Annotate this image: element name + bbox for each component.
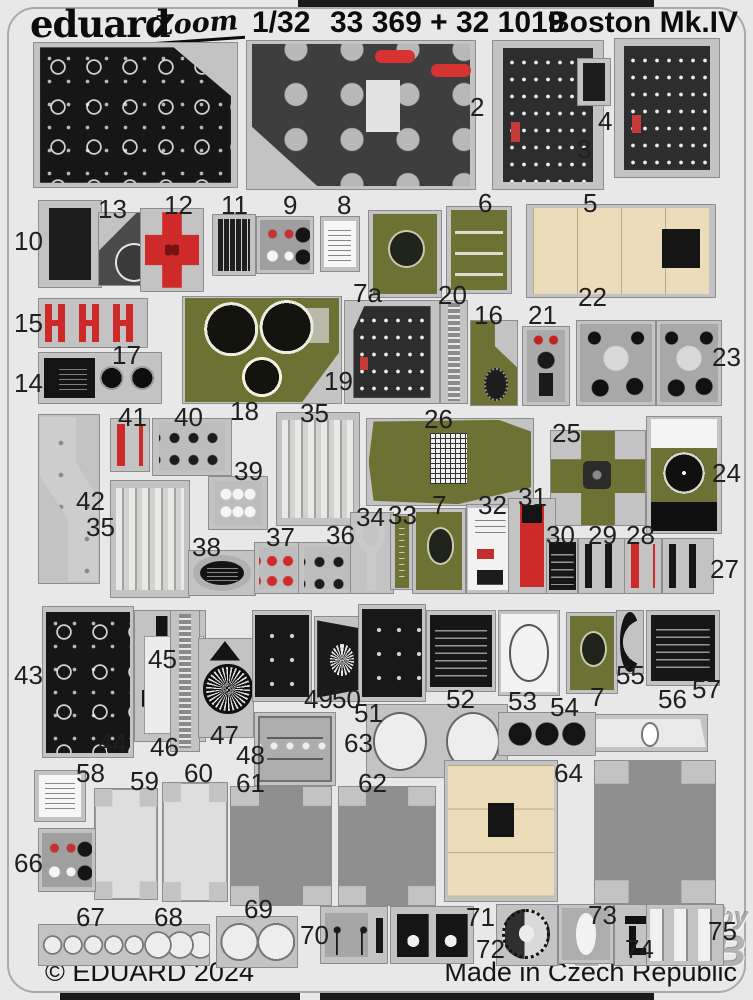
part-number-label-34: 34 — [356, 502, 385, 533]
part-number-label-31: 31 — [518, 482, 547, 513]
part-number-label-15: 15 — [14, 308, 43, 339]
part-number-label-72: 72 — [476, 934, 505, 965]
pe-sheet: eduard Zoom 1/32 33 369 + 32 1019 Boston… — [0, 0, 753, 1000]
part-35 — [110, 480, 190, 598]
part-number-label-73: 73 — [588, 900, 617, 931]
part-number-label-8: 8 — [337, 190, 351, 221]
part-number-label-11: 11 — [221, 190, 248, 221]
part-number-label-28: 28 — [626, 520, 655, 551]
part-22 — [576, 320, 656, 406]
part-number-label-9: 9 — [283, 190, 297, 221]
part-number-label-16: 16 — [474, 300, 503, 331]
part-number-label-57: 57 — [692, 674, 721, 705]
part-60 — [162, 782, 228, 902]
part-number-label-58: 58 — [76, 758, 105, 789]
part-number-label-26: 26 — [424, 404, 453, 435]
part-48 — [254, 712, 336, 786]
part-number-label-43: 43 — [14, 660, 43, 691]
part-number-label-52: 52 — [446, 684, 475, 715]
part-number-label-71: 71 — [466, 902, 495, 933]
part-14 — [38, 352, 162, 404]
part-62 — [338, 786, 436, 906]
part-number-label-37: 37 — [266, 522, 295, 553]
part-number-label-49: 49 — [304, 684, 333, 715]
part-number-label-45: 45 — [148, 644, 177, 675]
part-number-label-19: 19 — [324, 366, 353, 397]
part-number-label-60: 60 — [184, 758, 213, 789]
part-number-label-24: 24 — [712, 458, 741, 489]
part-number-label-61: 61 — [236, 768, 265, 799]
parts-layer: 23410131211987a6515171418192016212223424… — [0, 0, 753, 1000]
part-number-label-13: 13 — [98, 194, 127, 225]
part-70 — [320, 906, 388, 964]
part-number-label-18: 18 — [230, 396, 259, 427]
part-number-label-69: 69 — [244, 894, 273, 925]
part-64 — [444, 760, 558, 902]
part-72 — [496, 904, 558, 966]
part-number-label-7a: 7a — [353, 278, 382, 309]
part-number-label-2: 2 — [470, 92, 484, 123]
part-number-label-35: 35 — [86, 512, 115, 543]
part-number-label-39: 39 — [234, 456, 263, 487]
part-number-label-14: 14 — [14, 368, 43, 399]
part-11 — [212, 214, 256, 276]
part-number-label-51: 51 — [354, 698, 383, 729]
part-35 — [276, 412, 360, 526]
part-number-label-25: 25 — [552, 418, 581, 449]
part-number-label-27: 27 — [710, 554, 739, 585]
part-number-label-64: 64 — [554, 758, 583, 789]
part-dots-black — [498, 712, 596, 756]
part-number-label-74: 74 — [625, 934, 654, 965]
part-number-label-48: 48 — [236, 740, 265, 771]
part-5 — [526, 204, 716, 298]
part-number-label-47: 47 — [210, 720, 239, 751]
part-number-label-3: 3 — [577, 134, 591, 165]
part-52 — [426, 610, 496, 692]
part-number-label-54: 54 — [550, 692, 579, 723]
part-film — [33, 42, 238, 188]
part-8 — [320, 216, 360, 272]
part-box-cross-dark — [594, 760, 716, 904]
part-number-label-7: 7 — [432, 490, 446, 521]
part-59 — [94, 788, 158, 900]
part-number-label-20: 20 — [438, 280, 467, 311]
part-number-label-55: 55 — [616, 660, 645, 691]
part-number-label-66: 66 — [14, 848, 43, 879]
part-number-label-41: 41 — [118, 402, 147, 433]
part-number-label-56: 56 — [658, 684, 687, 715]
part-number-label-5: 5 — [583, 188, 597, 219]
part-number-label-44: 44 — [98, 728, 127, 759]
part-66 — [38, 828, 96, 892]
part-4 — [614, 38, 720, 178]
part-number-label-70: 70 — [300, 920, 329, 951]
part-49 — [252, 610, 312, 702]
part-21 — [522, 326, 570, 406]
part-number-label-46: 46 — [150, 732, 179, 763]
part-19 — [344, 300, 440, 404]
part-18 — [182, 296, 342, 404]
part-number-label-62: 62 — [358, 768, 387, 799]
part-number-label-33: 33 — [388, 500, 417, 531]
part-number-label-12: 12 — [164, 190, 193, 221]
part-24 — [646, 416, 722, 534]
part-71 — [390, 906, 474, 964]
part-number-label-32: 32 — [478, 490, 507, 521]
part-56 — [586, 714, 708, 752]
part-9 — [256, 216, 314, 274]
part-number-label-36: 36 — [326, 520, 355, 551]
part-number-label-35: 35 — [300, 398, 329, 429]
part-3 — [577, 58, 611, 106]
part-46 — [170, 610, 200, 752]
part-61 — [230, 786, 332, 906]
part-10 — [38, 200, 102, 288]
part-20 — [440, 300, 468, 404]
part-number-label-4: 4 — [598, 106, 612, 137]
part-number-label-40: 40 — [174, 402, 203, 433]
part-16 — [470, 320, 518, 406]
part-number-label-75: 75 — [708, 916, 737, 947]
part-51 — [358, 604, 426, 702]
part-number-label-29: 29 — [588, 520, 617, 551]
part-number-label-17: 17 — [112, 340, 141, 371]
part-number-label-63: 63 — [344, 728, 373, 759]
part-number-label-6: 6 — [478, 188, 492, 219]
part-27 — [662, 538, 714, 594]
part-number-label-22: 22 — [578, 282, 607, 313]
part-number-label-7: 7 — [590, 682, 604, 713]
part-number-label-38: 38 — [192, 532, 221, 563]
part-number-label-23: 23 — [712, 342, 741, 373]
part-number-label-53: 53 — [508, 686, 537, 717]
part-main-panel — [246, 40, 476, 190]
part-number-label-68: 68 — [154, 902, 183, 933]
part-number-label-10: 10 — [14, 226, 43, 257]
part-number-label-21: 21 — [528, 300, 557, 331]
part-67 — [38, 924, 210, 966]
part-number-label-67: 67 — [76, 902, 105, 933]
part-53 — [498, 610, 560, 696]
part-number-label-59: 59 — [130, 766, 159, 797]
part-number-label-30: 30 — [546, 520, 575, 551]
